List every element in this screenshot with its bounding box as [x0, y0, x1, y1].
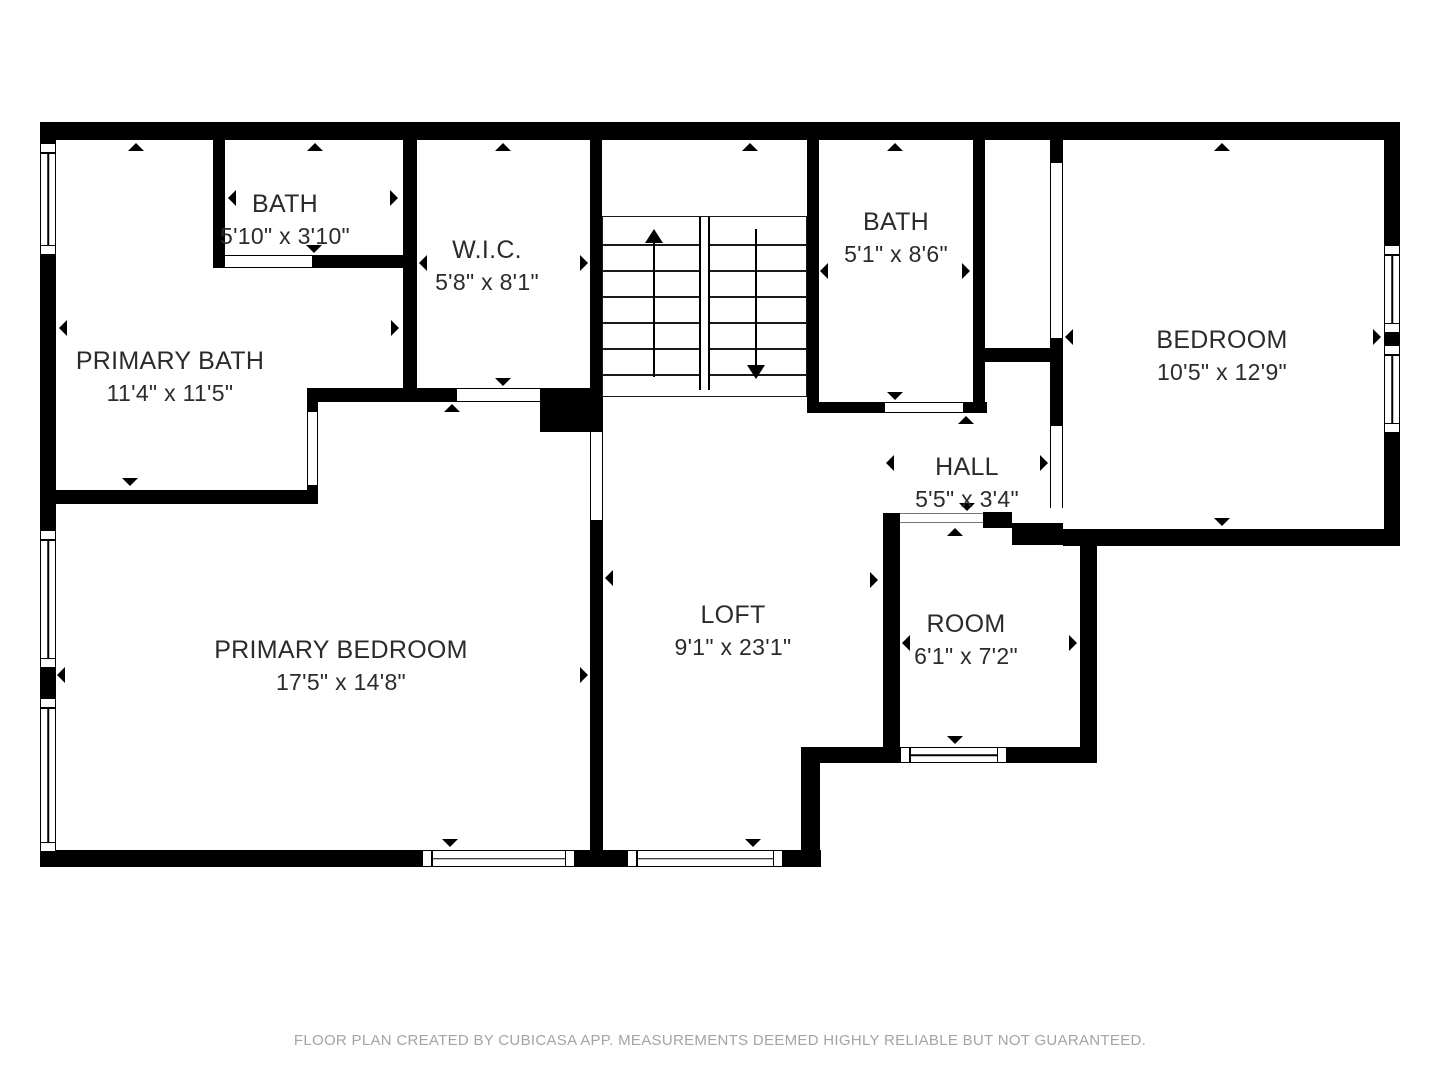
- measure-arrow-right-icon: [391, 320, 399, 336]
- wall: [540, 388, 603, 432]
- room-name: BATH: [844, 206, 948, 239]
- measure-arrow-down-icon: [495, 378, 511, 386]
- window: [422, 850, 575, 867]
- room-label-bedroom: BEDROOM 10'5" x 12'9": [1156, 324, 1287, 388]
- wall: [1012, 523, 1063, 545]
- disclaimer-text: FLOOR PLAN CREATED BY CUBICASA APP. MEAS…: [0, 1032, 1440, 1049]
- measure-arrow-down-icon: [947, 736, 963, 744]
- measure-arrow-up-icon: [947, 528, 963, 536]
- window: [40, 530, 56, 668]
- measure-arrow-down-icon: [745, 839, 761, 847]
- measure-arrow-down-icon: [442, 839, 458, 847]
- wall: [883, 513, 900, 763]
- room-dimensions: 11'4" x 11'5": [76, 378, 264, 409]
- measure-arrow-up-icon: [887, 143, 903, 151]
- window-cap: [41, 152, 55, 154]
- window: [1384, 245, 1400, 333]
- door-opening: [225, 255, 312, 268]
- window-glass-line: [47, 708, 49, 842]
- measure-arrow-right-icon: [962, 263, 970, 279]
- measure-arrow-right-icon: [870, 572, 878, 588]
- measure-arrow-right-icon: [580, 255, 588, 271]
- measure-arrow-right-icon: [580, 667, 588, 683]
- room-dimensions: 10'5" x 12'9": [1156, 357, 1287, 388]
- door-opening: [590, 432, 603, 520]
- window-cap: [41, 245, 55, 247]
- room-name: PRIMARY BEDROOM: [214, 634, 468, 667]
- room-name: BATH: [220, 188, 350, 221]
- wall: [1063, 529, 1400, 546]
- measure-arrow-left-icon: [886, 455, 894, 471]
- window-cap: [1385, 423, 1399, 425]
- room-name: W.I.C.: [435, 234, 539, 267]
- room-label-wic: W.I.C. 5'8" x 8'1": [435, 234, 539, 298]
- wall: [312, 255, 404, 268]
- measure-arrow-left-icon: [902, 635, 910, 651]
- window-cap: [41, 842, 55, 844]
- room-label-primary-bath: PRIMARY BATH 11'4" x 11'5": [76, 345, 264, 409]
- measure-arrow-left-icon: [419, 255, 427, 271]
- window-cap: [41, 658, 55, 660]
- measure-arrow-up-icon: [307, 143, 323, 151]
- room-name: PRIMARY BATH: [76, 345, 264, 378]
- window-glass-line: [432, 858, 565, 860]
- window-cap: [997, 748, 999, 762]
- wall: [1080, 545, 1097, 763]
- door-opening: [307, 412, 318, 485]
- wall: [40, 490, 318, 504]
- wall: [590, 140, 602, 388]
- measure-arrow-right-icon: [390, 190, 398, 206]
- window: [40, 143, 56, 255]
- room-label-primary-bedroom: PRIMARY BEDROOM 17'5" x 14'8": [214, 634, 468, 698]
- measure-arrow-left-icon: [57, 667, 65, 683]
- wall: [40, 122, 1400, 140]
- measure-arrow-left-icon: [820, 263, 828, 279]
- wall: [801, 747, 820, 867]
- window-cap: [431, 851, 433, 866]
- wall: [590, 520, 603, 850]
- measure-arrow-up-icon: [1214, 143, 1230, 151]
- wall: [807, 402, 885, 413]
- room-dimensions: 17'5" x 14'8": [214, 667, 468, 698]
- measure-arrow-left-icon: [1065, 329, 1073, 345]
- door-opening: [1050, 426, 1063, 508]
- room-name: ROOM: [914, 608, 1018, 641]
- window-glass-line: [637, 858, 773, 860]
- room-label-hall: HALL 5'5" x 3'4": [915, 451, 1019, 515]
- wall: [807, 140, 819, 413]
- measure-arrow-up-icon: [128, 143, 144, 151]
- room-label-bath-left: BATH 5'10" x 3'10": [220, 188, 350, 252]
- window-cap: [1385, 323, 1399, 325]
- measure-arrow-right-icon: [1069, 635, 1077, 651]
- room-name: HALL: [915, 451, 1019, 484]
- window-glass-line: [1391, 355, 1393, 423]
- room-label-room: ROOM 6'1" x 7'2": [914, 608, 1018, 672]
- window-glass-line: [47, 540, 49, 658]
- stair-up-arrow-head: [645, 229, 663, 243]
- room-name: BEDROOM: [1156, 324, 1287, 357]
- wall: [1384, 140, 1400, 546]
- stair-down-arrow: [755, 229, 757, 365]
- window-glass-line: [1391, 255, 1393, 323]
- wall: [973, 140, 985, 402]
- measure-arrow-down-icon: [122, 478, 138, 486]
- measure-arrow-up-icon: [444, 404, 460, 412]
- stair-up-arrow: [653, 241, 655, 377]
- window-cap: [636, 851, 638, 866]
- room-dimensions: 5'1" x 8'6": [844, 239, 948, 270]
- room-dimensions: 9'1" x 23'1": [675, 632, 792, 663]
- room-dimensions: 5'5" x 3'4": [915, 484, 1019, 515]
- measure-arrow-up-icon: [742, 143, 758, 151]
- closet-opening: [1050, 163, 1063, 338]
- room-dimensions: 5'8" x 8'1": [435, 267, 539, 298]
- room-name: LOFT: [675, 599, 792, 632]
- window: [40, 698, 56, 852]
- room-dimensions: 5'10" x 3'10": [220, 221, 350, 252]
- measure-arrow-left-icon: [59, 320, 67, 336]
- wall: [1050, 140, 1063, 163]
- measure-arrow-down-icon: [887, 392, 903, 400]
- wall: [985, 348, 1050, 362]
- room-dimensions: 6'1" x 7'2": [914, 641, 1018, 672]
- measure-arrow-down-icon: [1214, 518, 1230, 526]
- room-label-bath-right: BATH 5'1" x 8'6": [844, 206, 948, 270]
- measure-arrow-right-icon: [1040, 455, 1048, 471]
- wall: [307, 402, 318, 412]
- stair-rail: [699, 217, 710, 390]
- door-opening: [457, 388, 540, 402]
- window-glass-line: [910, 754, 997, 756]
- window-cap: [909, 748, 911, 762]
- window-cap: [565, 851, 567, 866]
- measure-arrow-up-icon: [958, 416, 974, 424]
- window-cap: [41, 707, 55, 709]
- floor-plan: PRIMARY BATH 11'4" x 11'5" BATH 5'10" x …: [0, 0, 1440, 1080]
- window-glass-line: [47, 153, 49, 245]
- window: [1384, 345, 1400, 433]
- window: [627, 850, 783, 867]
- measure-arrow-up-icon: [495, 143, 511, 151]
- window-cap: [41, 539, 55, 541]
- measure-arrow-left-icon: [605, 570, 613, 586]
- window-cap: [1385, 354, 1399, 356]
- wall: [963, 402, 987, 413]
- wall: [403, 140, 417, 388]
- window-cap: [773, 851, 775, 866]
- wall: [307, 388, 457, 402]
- window: [900, 747, 1007, 763]
- room-label-loft: LOFT 9'1" x 23'1": [675, 599, 792, 663]
- wall: [1050, 338, 1063, 426]
- door-opening: [885, 402, 963, 413]
- stair-down-arrow-head: [747, 365, 765, 379]
- window-cap: [1385, 254, 1399, 256]
- staircase: [602, 216, 807, 397]
- measure-arrow-right-icon: [1373, 329, 1381, 345]
